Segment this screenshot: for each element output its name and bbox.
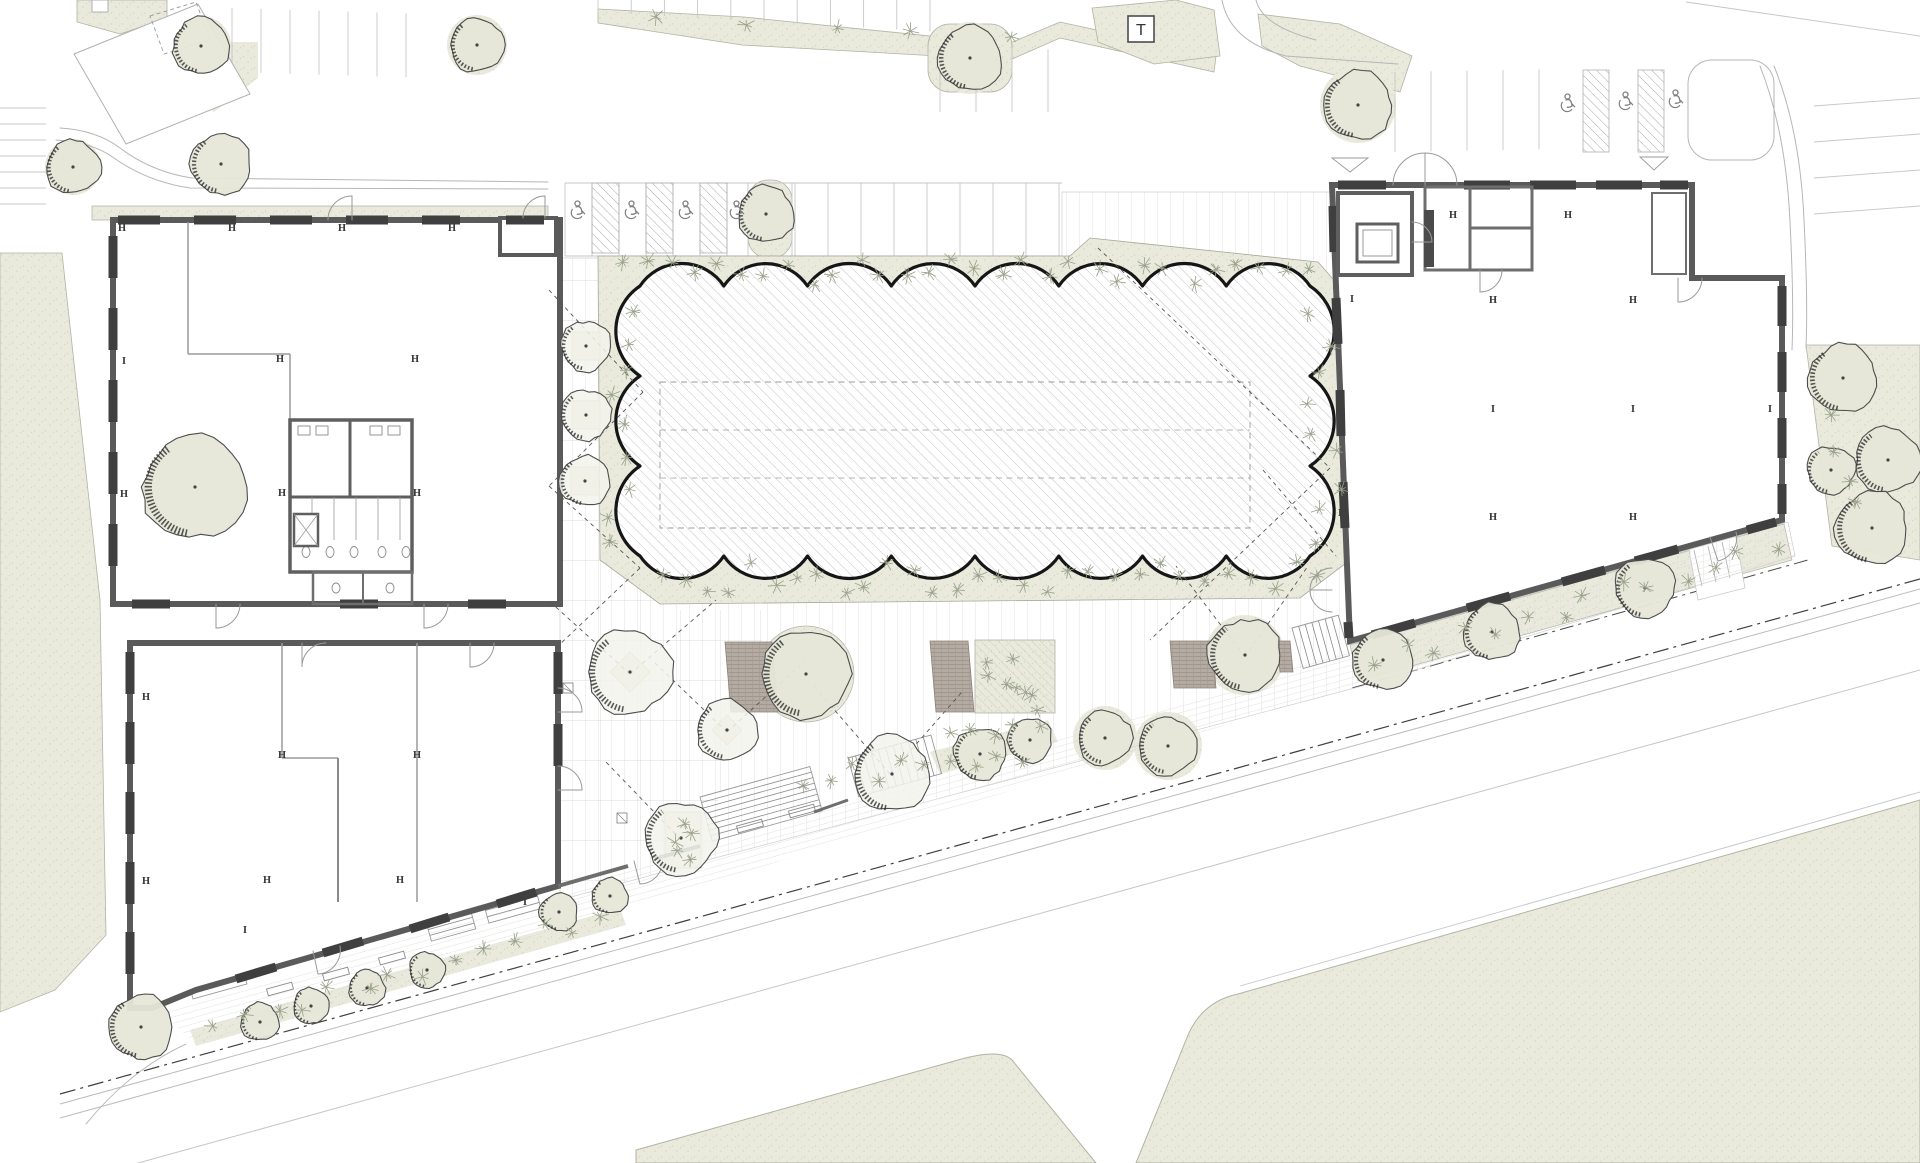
shrub-arm [974,269,981,270]
tree-trunk [584,344,587,347]
tree-trunk [1166,744,1169,747]
aisle-arrow [1640,157,1668,170]
stall-right [1814,98,1920,106]
tree-trunk [1381,658,1384,661]
column-marker: I [1338,509,1342,519]
icon-head [1565,94,1570,99]
grass-left-band [0,253,106,1012]
shrub-arm [675,834,676,843]
column-marker: H [1489,513,1498,523]
column-marker: H [396,876,405,886]
tree [109,994,172,1060]
column-marker: H [413,489,422,499]
tree-trunk [725,728,728,731]
column-marker: H [118,224,127,234]
tree-trunk [1103,736,1106,739]
left-building-upper [113,220,560,604]
shrub-arm [1307,404,1316,405]
column-marker: H [142,693,151,703]
tree-trunk [764,212,767,215]
tree-trunk [193,485,196,488]
icon-body [684,207,691,215]
column-marker: I [1631,405,1635,415]
tree-trunk [1886,458,1889,461]
shrub-arm [910,27,917,31]
site-plan: HHHHIHHHHHHHHHHHIIHHHHIIIHHII T [0,0,1920,1163]
tree-trunk [968,56,971,59]
accessible-parking-icon [1619,92,1633,110]
shrub-arm [970,730,971,736]
shrub-arm [1011,33,1017,36]
tree-trunk [199,44,202,47]
shrub-arm [572,933,578,934]
column-marker: H [1629,513,1638,523]
column-marker: H [263,876,272,886]
column-marker: H [448,224,457,234]
hatched-stall [646,183,673,253]
icon-body [735,207,742,215]
aisle-arrow [1332,158,1368,172]
tree-trunk [1829,468,1832,471]
tree-trunk [71,165,74,168]
tree-trunk [628,670,631,673]
column-marker: H [338,224,347,234]
transformer-pad: T [1128,16,1154,42]
wall-solid [1424,210,1434,267]
hatched-stall [592,183,619,253]
tree-trunk [583,479,586,482]
tree-trunk [475,43,478,46]
column-marker: H [278,489,287,499]
shrub-arm [908,267,909,275]
column-marker: I [1350,295,1354,305]
icon-body [576,207,583,215]
curb-top-right [1686,2,1920,36]
shrub-arm [1842,481,1851,482]
column-marker: I [1768,405,1772,415]
icon-body [1566,100,1573,108]
column-marker: I [523,898,527,908]
tree-trunk [219,162,222,165]
dark-planter [930,641,974,712]
icon-head [575,201,580,206]
tree-trunk [1028,738,1031,741]
shape [1340,390,1341,436]
shrub-arm [973,269,974,277]
grass-patch-south-1 [636,1054,1096,1163]
column-marker: H [1629,296,1638,306]
tree-trunk [890,772,893,775]
icon-head [1623,92,1628,97]
door-arc [1393,153,1457,185]
icon-head [683,201,688,206]
canopy-cloud-hatch [616,264,1334,579]
hatched-stall [700,183,727,253]
accessible-parking-icon [571,201,585,219]
tree-trunk [608,894,611,897]
column-marker: H [278,751,287,761]
column-marker: H [413,751,422,761]
icon-body [1624,98,1631,106]
tree-trunk [1841,376,1844,379]
column-marker: H [1489,296,1498,306]
tree-canopy [189,133,250,195]
stall-right [1814,134,1920,142]
shape [1348,622,1349,638]
site-plan-canvas: HHHHIHHHHHHHHHHHIIHHHHIIIHHII T [0,0,1920,1163]
tree-trunk [1870,526,1873,529]
shape [1333,206,1334,252]
icon-body [1674,96,1681,104]
tree-trunk [309,1004,312,1007]
accessible-parking-icon [1561,94,1575,112]
tree-trunk [584,413,587,416]
accessible-parking-icon [625,201,639,219]
column-marker: H [228,224,237,234]
icon-head [734,201,739,206]
transformer-label: T [1135,21,1146,39]
shape [1336,298,1338,344]
tree-trunk [258,1020,261,1023]
layer-cloud [616,264,1334,579]
tree-trunk [1356,103,1359,106]
context-box [92,0,108,12]
tree-trunk [557,910,560,913]
column-marker: I [1491,405,1495,415]
column-marker: H [411,355,420,365]
column-marker: H [120,490,129,500]
shrub-arm [978,576,979,583]
column-marker: H [1449,211,1458,221]
grass-t-island [1092,0,1220,64]
hatched-stall [1583,70,1609,152]
accessible-parking-icon [1669,90,1683,108]
tree-trunk [978,752,981,755]
drawing-layers: HHHHIHHHHHHHHHHHIIHHHHIIIHHII [0,0,1920,1163]
column-marker: I [243,926,247,936]
parking-island-curb [1688,60,1774,160]
tree-trunk [425,968,428,971]
hatched-stall [1638,70,1664,152]
icon-body [630,207,637,215]
accessible-parking-icon [679,201,693,219]
shrub-arm [301,1004,302,1010]
column-marker: H [142,877,151,887]
icon-head [629,201,634,206]
column-marker: I [122,357,126,367]
tree-trunk [804,672,807,675]
shrub-arm [1228,568,1229,574]
shrub-arm [1374,665,1375,671]
door-arc [216,604,240,628]
tree-trunk [1243,653,1246,656]
tree-trunk [139,1025,142,1028]
door-arc [424,604,448,628]
tree [189,133,250,195]
icon-head [1673,90,1678,95]
stall-right [1814,170,1920,178]
column-marker: H [276,355,285,365]
shrub-arm [626,370,627,379]
shrub-arm [945,761,951,762]
column-marker: H [1564,211,1573,221]
stall-right [1814,206,1920,214]
